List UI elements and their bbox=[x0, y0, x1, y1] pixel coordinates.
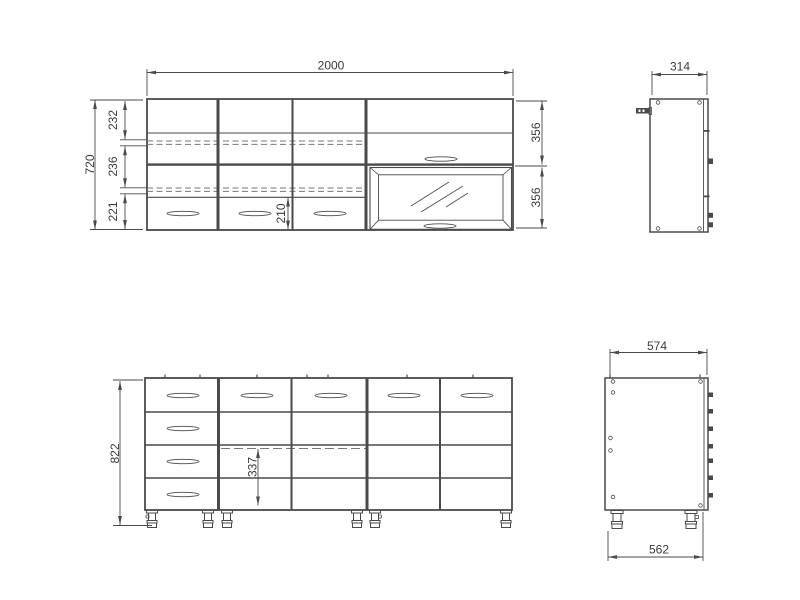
filled-layer bbox=[93, 71, 713, 559]
drawer-handle bbox=[167, 211, 199, 215]
cabinet-outline bbox=[605, 378, 708, 510]
adjustable-foot bbox=[203, 510, 214, 528]
wall-cabinet-side-view bbox=[649, 71, 708, 232]
dim-label-depth-314: 314 bbox=[670, 60, 690, 74]
technical-drawing: 2000 720 232 236 221 210 356 356 314 822… bbox=[0, 0, 800, 600]
dim-label-shelf-337: 337 bbox=[246, 457, 260, 477]
dim-label-width-2000: 2000 bbox=[318, 59, 345, 73]
adjustable-feet bbox=[146, 510, 512, 528]
dim-label-section-232: 232 bbox=[106, 110, 120, 130]
drawer-handle bbox=[167, 426, 199, 430]
drawer-handle bbox=[241, 393, 273, 397]
dim-label-drawer-210: 210 bbox=[274, 203, 288, 223]
wall-cabinet-front-view bbox=[90, 69, 547, 230]
adjustable-feet bbox=[611, 511, 699, 529]
dimension-arrowheads bbox=[93, 71, 707, 559]
base-cabinet-side-view bbox=[605, 349, 708, 561]
drawer-handle bbox=[314, 211, 346, 215]
dimension-lines-wall-front bbox=[90, 69, 547, 230]
door-handle bbox=[425, 157, 457, 161]
adjustable-foot bbox=[352, 510, 363, 528]
dim-label-depth-562: 562 bbox=[649, 543, 669, 557]
glass-reflection-lines bbox=[411, 182, 468, 212]
dim-label-door-356-top: 356 bbox=[529, 122, 543, 142]
dim-label-door-356-bottom: 356 bbox=[529, 187, 543, 207]
dimension-lines-base-front bbox=[113, 380, 258, 526]
adjustable-foot bbox=[146, 510, 158, 528]
assembly-holes bbox=[609, 380, 703, 508]
assembly-holes bbox=[656, 101, 701, 231]
adjustable-foot bbox=[501, 510, 512, 528]
dimension-lines-base-side bbox=[608, 349, 707, 561]
base-cabinet-front-view bbox=[113, 378, 512, 528]
adjustable-foot bbox=[222, 510, 233, 528]
outline-layer bbox=[90, 69, 708, 561]
dim-label-depth-574: 574 bbox=[647, 339, 667, 353]
glass-door bbox=[370, 168, 512, 230]
door-handle bbox=[424, 224, 456, 228]
adjustable-foot bbox=[685, 511, 699, 529]
cabinet-dividers bbox=[147, 99, 513, 230]
dim-label-height-720: 720 bbox=[83, 154, 97, 174]
drawer-handle bbox=[167, 492, 199, 496]
drawing-canvas: 2000 720 232 236 221 210 356 356 314 822… bbox=[0, 0, 800, 600]
drawer-handle bbox=[388, 393, 420, 397]
drawer-handle bbox=[315, 393, 347, 397]
drawer-handle bbox=[239, 211, 271, 215]
drawer-handle bbox=[167, 459, 199, 463]
shelf-dashed-lines bbox=[147, 141, 366, 449]
cabinet-outline bbox=[650, 99, 708, 232]
adjustable-foot bbox=[370, 510, 382, 528]
adjustable-foot bbox=[611, 511, 623, 529]
drawer-handle bbox=[461, 393, 493, 397]
dim-label-section-221: 221 bbox=[106, 201, 120, 221]
dim-label-section-236: 236 bbox=[106, 156, 120, 176]
drawer-handle bbox=[167, 393, 199, 397]
dim-label-height-822: 822 bbox=[108, 443, 122, 463]
